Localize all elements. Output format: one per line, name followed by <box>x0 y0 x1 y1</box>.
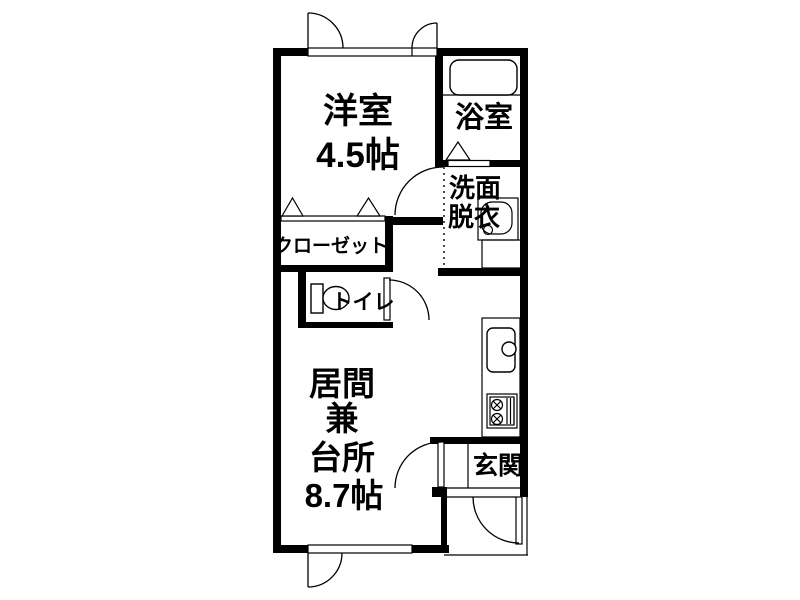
front-door-arc <box>473 497 519 543</box>
label-bathroom: 浴室 <box>455 100 513 134</box>
toilet-door-arc <box>389 280 429 320</box>
label-western-room-size: 4.5帖 <box>316 136 400 175</box>
bathroom-door-panel <box>448 161 490 167</box>
wall-hall-segment <box>386 217 443 225</box>
western-room-door-arc <box>395 167 443 215</box>
terrace-door-arc <box>308 553 342 587</box>
closet-door-track <box>281 216 385 221</box>
wall-bathroom-left <box>435 48 443 167</box>
wall-porch-left <box>441 497 447 553</box>
kitchen-sink-icon <box>487 328 516 372</box>
window-bottom <box>308 545 412 553</box>
casement-right-arc <box>412 23 437 48</box>
wall-toilet-left <box>298 265 306 328</box>
living-entrance-door-panel <box>438 442 444 487</box>
wall-entrance-top <box>430 437 528 444</box>
label-closet: クローゼット <box>274 234 388 257</box>
washing-machine-pan <box>482 240 521 268</box>
closet-door-mark-right <box>357 198 380 216</box>
wall-left <box>273 48 281 553</box>
wall-closet-bottom <box>273 265 393 272</box>
label-living-line3: 台所 <box>309 439 375 476</box>
front-door-panel <box>516 497 522 544</box>
bathtub-icon <box>450 60 517 95</box>
closet-door-mark-left <box>282 198 303 216</box>
bathroom-door-mark <box>446 142 470 160</box>
label-western-room: 洋室 <box>323 91 393 131</box>
casement-left-arc <box>308 13 343 48</box>
floor-plan-page: 洋室 4.5帖 浴室 洗面 脱衣 クローゼット トイレ 居間 兼 台所 8.7帖… <box>0 0 800 600</box>
label-living-size: 8.7帖 <box>305 477 384 514</box>
label-entrance: 玄関 <box>473 451 523 480</box>
label-living-line2: 兼 <box>326 400 359 437</box>
floor-plan-drawing: 洋室 4.5帖 浴室 洗面 脱衣 クローゼット トイレ 居間 兼 台所 8.7帖… <box>0 0 800 600</box>
stove-icon <box>487 394 517 428</box>
label-washroom-line2: 脱衣 <box>448 202 500 232</box>
label-toilet: トイレ <box>332 291 395 314</box>
window-top <box>308 48 437 56</box>
label-living-line1: 居間 <box>309 365 375 402</box>
label-washroom-line1: 洗面 <box>449 173 501 203</box>
living-entrance-door-arc <box>395 442 441 488</box>
wall-toilet-bottom <box>298 322 393 328</box>
wall-washroom-bottom <box>438 268 528 276</box>
